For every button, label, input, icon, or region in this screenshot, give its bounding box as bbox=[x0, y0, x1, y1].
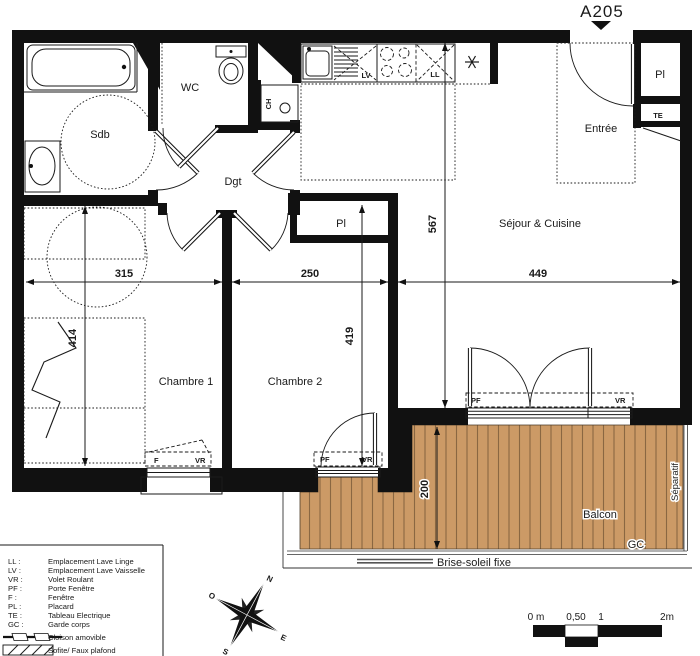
scale-0: 0 m bbox=[528, 612, 545, 623]
legend-abbr: VR : bbox=[8, 575, 23, 584]
sejour-vr-label: VR bbox=[615, 396, 626, 405]
room-label-wc: WC bbox=[181, 82, 199, 94]
dim-250: 250 bbox=[301, 268, 319, 280]
ll-label: LL bbox=[430, 70, 440, 79]
legend-label: Emplacement Lave Linge bbox=[48, 557, 134, 566]
turning-circle-ch1 bbox=[47, 207, 147, 307]
dim-419: 419 bbox=[344, 327, 356, 345]
ch-label: CH bbox=[264, 99, 273, 110]
separatif-label: Séparatif bbox=[670, 463, 681, 501]
legend-label: Tableau Electrique bbox=[48, 611, 110, 620]
legend-label: Cloison amovible bbox=[48, 633, 106, 642]
washbasin-icon bbox=[25, 141, 60, 192]
legend-label: Placard bbox=[48, 602, 74, 611]
dim-414: 414 bbox=[67, 328, 79, 347]
legend-label: Fenêtre bbox=[48, 593, 74, 602]
fridge-icon bbox=[465, 56, 479, 68]
turning-circle-sdb bbox=[61, 95, 155, 189]
compass-s: S bbox=[221, 647, 230, 656]
legend-label: Emplacement Lave Vaisselle bbox=[48, 566, 145, 575]
legend-abbr: LL : bbox=[8, 557, 20, 566]
dim-315: 315 bbox=[115, 268, 133, 280]
legend-label: Volet Roulant bbox=[48, 575, 94, 584]
legend-label: Porte Fenêtre bbox=[48, 584, 94, 593]
kitchen-counter: LL LV bbox=[301, 44, 490, 84]
lv-label: LV bbox=[361, 71, 370, 80]
door-entrance bbox=[570, 43, 633, 106]
te-door-line bbox=[643, 128, 681, 141]
door-sejour bbox=[253, 132, 294, 190]
legend-abbr: F : bbox=[8, 593, 17, 602]
entree-zone-outline bbox=[557, 43, 635, 183]
ch1-vr-label: VR bbox=[195, 456, 206, 465]
legend-label: Sofite/ Faux plafond bbox=[48, 646, 116, 655]
walls bbox=[12, 30, 692, 492]
compass-rose: N E S O bbox=[207, 574, 288, 656]
faux-plafond-icon bbox=[3, 645, 53, 655]
compass-o: O bbox=[207, 591, 216, 602]
washer-location-icon: LL bbox=[417, 45, 454, 81]
scale-2: 2m bbox=[660, 612, 674, 623]
soffit-outline bbox=[301, 84, 455, 180]
scale-1: 1 bbox=[598, 612, 604, 623]
dim-449: 449 bbox=[529, 268, 547, 280]
door-chambre1 bbox=[167, 213, 220, 250]
sejour-pf-label: PF bbox=[471, 396, 481, 405]
floor-plan-canvas: A205 bbox=[0, 0, 700, 656]
room-label-chambre1: Chambre 1 bbox=[159, 376, 213, 388]
bathtub-icon bbox=[24, 43, 137, 92]
ch2-pf-label: PF bbox=[320, 455, 330, 464]
legend-abbr: TE : bbox=[8, 611, 22, 620]
door-chambre2 bbox=[234, 213, 288, 250]
entrance-marker-icon bbox=[591, 21, 611, 30]
cooktop-icon bbox=[381, 48, 412, 77]
te-label: TE bbox=[653, 111, 663, 120]
legend-label: Garde corps bbox=[48, 620, 90, 629]
room-label-sdb: Sdb bbox=[90, 129, 110, 141]
apartment-title: A205 bbox=[580, 2, 624, 30]
compass-n: N bbox=[265, 574, 274, 585]
pl-entrance-label: Pl bbox=[655, 69, 665, 81]
gc-label: GC bbox=[628, 539, 645, 551]
window-sejour-balcony: PF VR bbox=[466, 393, 633, 418]
room-label-chambre2: Chambre 2 bbox=[268, 376, 322, 388]
dim-567: 567 bbox=[427, 215, 439, 233]
legend-abbr: PL : bbox=[8, 602, 21, 611]
room-label-dgt: Dgt bbox=[224, 176, 241, 188]
room-label-sejour: Séjour & Cuisine bbox=[499, 218, 581, 230]
door-balcony-french bbox=[470, 348, 590, 408]
scale-05: 0,50 bbox=[566, 612, 586, 623]
floor-plan-a205: A205 bbox=[0, 0, 700, 656]
room-label-entree: Entrée bbox=[585, 123, 617, 135]
legend-abbr: GC : bbox=[8, 620, 24, 629]
room-label-balcon: Balcon bbox=[583, 509, 617, 521]
page-title: A205 bbox=[580, 2, 624, 21]
brise-soleil: Brise-soleil fixe bbox=[357, 557, 511, 569]
legend-abbr: PF : bbox=[8, 584, 22, 593]
ch1-f-label: F bbox=[154, 456, 159, 465]
compass-e: E bbox=[279, 633, 288, 644]
toilet-icon bbox=[216, 46, 246, 84]
legend-abbr: LV : bbox=[8, 566, 21, 575]
window-chambre1: F VR bbox=[141, 440, 222, 494]
door-sdb bbox=[156, 131, 198, 190]
pl-bedroom-label: Pl bbox=[336, 218, 346, 230]
water-heater-icon: CH bbox=[261, 85, 298, 122]
dim-200: 200 bbox=[419, 480, 431, 498]
scale-bar: 0 m 0,50 1 2m bbox=[528, 612, 674, 647]
window-chambre2-balcony: PF VR bbox=[314, 452, 382, 477]
legend: LL : Emplacement Lave Linge LV : Emplace… bbox=[0, 545, 163, 656]
brise-soleil-label: Brise-soleil fixe bbox=[437, 557, 511, 569]
